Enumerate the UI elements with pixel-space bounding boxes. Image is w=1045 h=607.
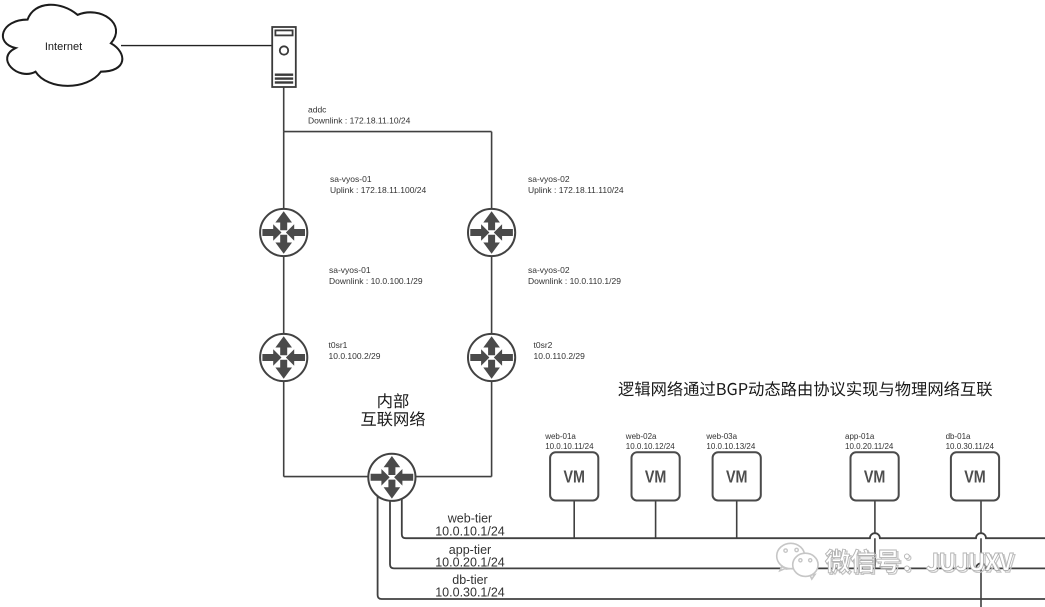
svg-text:Internet: Internet [45,41,82,53]
svg-text:Uplink : 172.18.11.100/24: Uplink : 172.18.11.100/24 [330,185,427,195]
svg-text:sa-vyos-01: sa-vyos-01 [329,265,371,275]
svg-text:10.0.10.12/24: 10.0.10.12/24 [626,442,675,451]
svg-text:web-01a: web-01a [544,432,576,441]
svg-text:10.0.30.11/24: 10.0.30.11/24 [946,442,995,451]
svg-text:10.0.100.2/29: 10.0.100.2/29 [329,351,381,361]
svg-text:t0sr2: t0sr2 [534,340,553,350]
svg-text:web-03a: web-03a [705,432,737,441]
svg-text:app-01a: app-01a [845,432,875,441]
svg-text:10.0.30.1/24: 10.0.30.1/24 [435,586,505,600]
svg-text:10.0.10.1/24: 10.0.10.1/24 [435,525,505,539]
svg-text:VM: VM [645,467,667,487]
svg-text:Downlink : 10.0.110.1/29: Downlink : 10.0.110.1/29 [528,276,621,286]
svg-text:VM: VM [864,467,886,487]
svg-text:10.0.20.1/24: 10.0.20.1/24 [435,555,505,569]
svg-text:Downlink : 10.0.100.1/29: Downlink : 10.0.100.1/29 [329,276,423,286]
svg-text:10.0.10.13/24: 10.0.10.13/24 [706,442,755,451]
svg-text:sa-vyos-02: sa-vyos-02 [528,265,570,275]
svg-text:10.0.110.2/29: 10.0.110.2/29 [534,351,586,361]
svg-text:Downlink : 172.18.11.10/24: Downlink : 172.18.11.10/24 [308,116,411,126]
svg-text:web-tier: web-tier [447,511,492,525]
svg-text:addc: addc [308,105,327,115]
svg-text:sa-vyos-02: sa-vyos-02 [528,174,570,184]
svg-text:10.0.10.11/24: 10.0.10.11/24 [545,442,594,451]
svg-text:VM: VM [726,467,748,487]
svg-text:sa-vyos-01: sa-vyos-01 [330,174,372,184]
svg-text:VM: VM [563,467,585,487]
svg-text:VM: VM [964,467,986,487]
svg-text:web-02a: web-02a [625,432,657,441]
svg-text:db-01a: db-01a [946,432,971,441]
svg-text:10.0.20.11/24: 10.0.20.11/24 [845,442,894,451]
svg-text:Uplink : 172.18.11.110/24: Uplink : 172.18.11.110/24 [528,185,624,195]
svg-text:t0sr1: t0sr1 [329,340,348,350]
